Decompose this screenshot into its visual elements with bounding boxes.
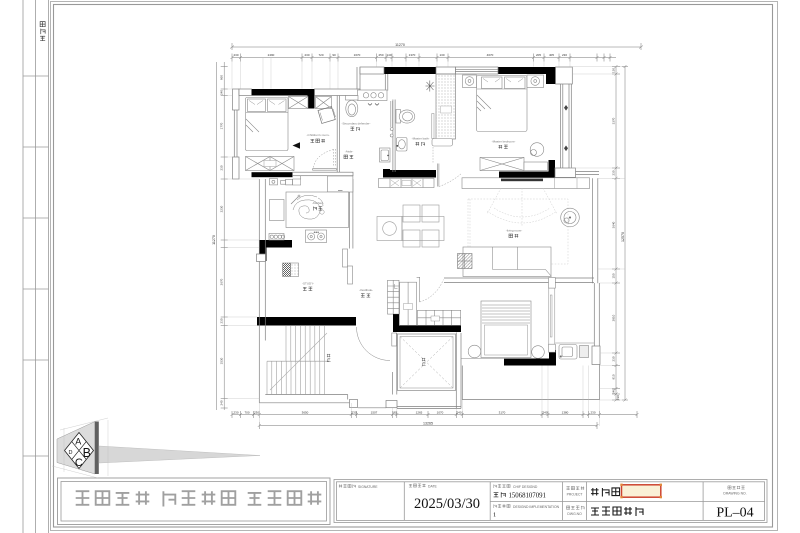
svg-text:230: 230 bbox=[254, 410, 259, 414]
svg-text:240: 240 bbox=[220, 90, 224, 95]
svg-text:-living room-: -living room- bbox=[506, 229, 523, 233]
svg-text:910: 910 bbox=[612, 374, 616, 379]
svg-text:860: 860 bbox=[220, 75, 224, 80]
svg-text:DWG.NO: DWG.NO bbox=[567, 512, 582, 516]
svg-text:1670: 1670 bbox=[354, 53, 361, 57]
svg-text:3650: 3650 bbox=[302, 410, 309, 414]
svg-text:3370: 3370 bbox=[612, 117, 616, 124]
svg-text:150: 150 bbox=[612, 273, 616, 278]
svg-text:2490: 2490 bbox=[268, 53, 275, 57]
svg-text:13265: 13265 bbox=[423, 421, 433, 425]
svg-text:3640: 3640 bbox=[612, 221, 616, 228]
svg-text:-Master bedroom-: -Master bedroom- bbox=[492, 140, 516, 144]
svg-text:1: 1 bbox=[493, 512, 496, 519]
svg-text:3170: 3170 bbox=[499, 410, 506, 414]
svg-text:SIGNATURE: SIGNATURE bbox=[358, 485, 378, 489]
svg-text:230: 230 bbox=[220, 318, 224, 323]
svg-text:2230: 2230 bbox=[220, 205, 224, 212]
svg-text:140: 140 bbox=[386, 53, 391, 57]
svg-text:240: 240 bbox=[612, 389, 616, 394]
svg-text:700: 700 bbox=[244, 410, 249, 414]
svg-text:PROJECT: PROJECT bbox=[567, 493, 583, 497]
svg-text:B: B bbox=[83, 446, 91, 460]
svg-text:230: 230 bbox=[562, 53, 567, 57]
svg-text:230: 230 bbox=[612, 170, 616, 175]
svg-text:15068107091: 15068107091 bbox=[509, 493, 546, 500]
svg-text:90: 90 bbox=[332, 53, 336, 57]
svg-text:205: 205 bbox=[536, 53, 541, 57]
svg-text:4670: 4670 bbox=[487, 53, 494, 57]
svg-text:230: 230 bbox=[220, 165, 224, 170]
svg-text:D: D bbox=[69, 450, 73, 456]
svg-text:230: 230 bbox=[233, 53, 238, 57]
svg-text:11270: 11270 bbox=[212, 235, 216, 245]
svg-text:C: C bbox=[75, 457, 83, 469]
svg-text:2670: 2670 bbox=[220, 278, 224, 285]
svg-text:1530: 1530 bbox=[220, 357, 224, 364]
svg-text:230: 230 bbox=[590, 410, 595, 414]
svg-text:130: 130 bbox=[612, 68, 616, 73]
svg-text:-Master bath-: -Master bath- bbox=[412, 137, 430, 141]
svg-text:-Vestibule-: -Vestibule- bbox=[359, 288, 373, 292]
svg-text:1265: 1265 bbox=[416, 410, 423, 414]
svg-text:1370: 1370 bbox=[409, 53, 416, 57]
svg-text:80: 80 bbox=[393, 410, 397, 414]
svg-text:240: 240 bbox=[542, 410, 547, 414]
svg-text:-Kitchen-: -Kitchen- bbox=[312, 201, 324, 205]
svg-text:250: 250 bbox=[378, 53, 383, 57]
svg-text:230: 230 bbox=[304, 53, 309, 57]
svg-text:230: 230 bbox=[612, 356, 616, 361]
svg-text:-Secondary defender-: -Secondary defender- bbox=[341, 122, 370, 126]
svg-text:230: 230 bbox=[351, 410, 356, 414]
svg-text:DRAWING NO.: DRAWING NO. bbox=[723, 492, 746, 496]
svg-text:1507: 1507 bbox=[371, 410, 378, 414]
svg-text:2025/03/30: 2025/03/30 bbox=[414, 496, 480, 512]
svg-text:1380: 1380 bbox=[562, 410, 569, 414]
svg-text:130: 130 bbox=[616, 395, 620, 400]
svg-text:11270: 11270 bbox=[395, 43, 405, 47]
svg-text:-STUDY-: -STUDY- bbox=[302, 282, 314, 286]
svg-text:12570: 12570 bbox=[621, 232, 625, 242]
svg-text:240: 240 bbox=[456, 410, 461, 414]
svg-text:2810: 2810 bbox=[612, 314, 616, 321]
svg-text:230: 230 bbox=[233, 410, 238, 414]
svg-text:130: 130 bbox=[439, 53, 444, 57]
svg-text:720: 720 bbox=[318, 53, 323, 57]
svg-text:PL–04: PL–04 bbox=[716, 506, 753, 521]
svg-text:DESIGND IMPLEMENTATION: DESIGND IMPLEMENTATION bbox=[513, 505, 560, 509]
svg-text:CHIF DESIGND: CHIF DESIGND bbox=[513, 485, 538, 489]
svg-text:A: A bbox=[75, 437, 81, 447]
svg-text:240: 240 bbox=[220, 400, 224, 405]
svg-text:-Children's room-: -Children's room- bbox=[307, 133, 330, 137]
svg-text:1770: 1770 bbox=[220, 122, 224, 129]
svg-text:DATE: DATE bbox=[428, 485, 438, 489]
svg-text:1070: 1070 bbox=[437, 410, 444, 414]
svg-text:405: 405 bbox=[549, 53, 554, 57]
svg-text:-Aisle-: -Aisle- bbox=[345, 150, 354, 154]
